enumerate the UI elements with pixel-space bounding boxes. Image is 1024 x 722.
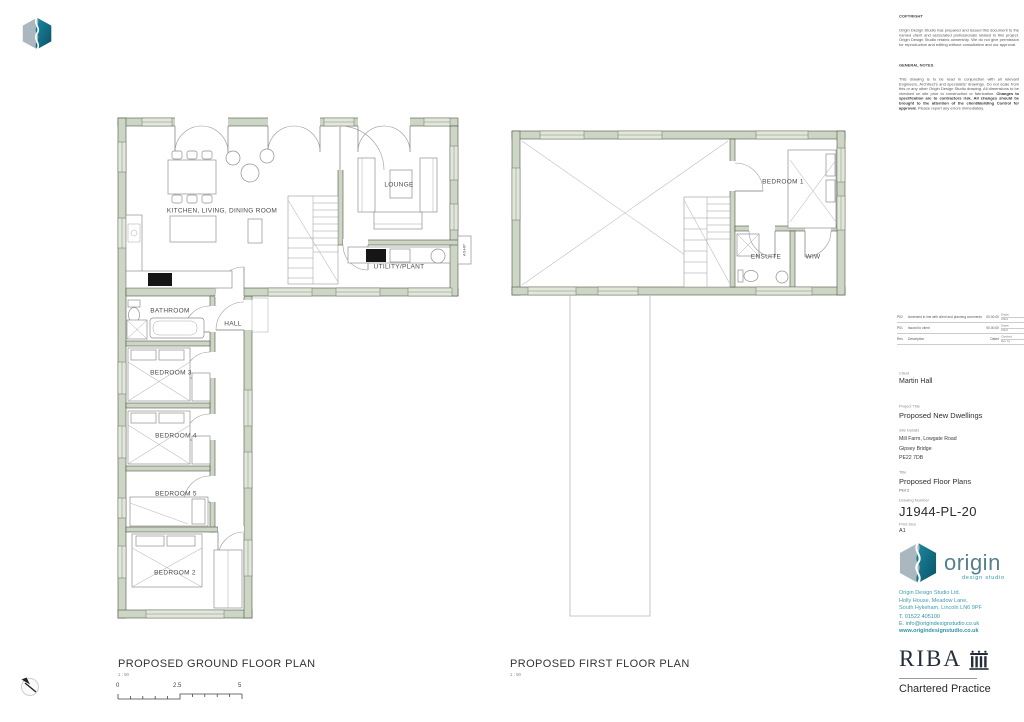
first-floor-plan-title: PROPOSED FIRST FLOOR PLAN bbox=[510, 658, 690, 670]
ground-floor-plan-scale: 1 : 50 bbox=[118, 672, 129, 677]
print-size-value: A1 bbox=[899, 528, 906, 534]
revision-row: P02 Amended in line with client and plan… bbox=[897, 312, 1024, 323]
ground-floor-plan-title: PROPOSED GROUND FLOOR PLAN bbox=[118, 658, 315, 670]
origin-tagline: design studio bbox=[962, 575, 1005, 581]
scale-bar-zero: 0 bbox=[116, 683, 119, 689]
room-label-ensuite: ENSUITE bbox=[751, 254, 781, 261]
first-floor-plan-scale: 1 : 50 bbox=[510, 672, 521, 677]
address-line-2: South Hykeham, Lincoln LN6 9PF bbox=[899, 605, 982, 613]
room-label-bedroom4: BEDROOM 4 bbox=[155, 433, 197, 440]
label-ashp: ASHP bbox=[462, 244, 467, 256]
general-notes-title: GENERAL NOTES bbox=[899, 63, 960, 68]
room-label-wiw: WIW bbox=[806, 254, 821, 261]
email-address: E. info@origindesignstudio.co.uk bbox=[899, 621, 979, 628]
room-label-lounge: LOUNGE bbox=[384, 182, 413, 189]
drawing-sheet: KITCHEN, LIVING, DINING ROOM LOUNGE UTIL… bbox=[0, 0, 1024, 722]
room-label-kitchen: KITCHEN, LIVING, DINING ROOM bbox=[167, 208, 277, 215]
scale-bar-end: 5 bbox=[238, 683, 241, 689]
revision-header-row: Rev. Description Dated CheckedRev. by bbox=[897, 334, 1024, 345]
print-size-label: Print Size bbox=[899, 522, 916, 527]
room-label-bedroom1: BEDROOM 1 bbox=[762, 179, 804, 186]
site-details-label: Site Details bbox=[899, 428, 919, 433]
room-label-bathroom: BATHROOM bbox=[150, 308, 189, 315]
general-notes-body: This drawing is to be read in conjunctio… bbox=[899, 77, 1019, 111]
room-label-bedroom3: BEDROOM 3 bbox=[150, 370, 192, 377]
address-line-1: Holly House, Meadow Lane, bbox=[899, 598, 982, 606]
drawing-title-label: Title bbox=[899, 470, 906, 475]
room-label-utility: UTILITY/PLANT bbox=[374, 264, 425, 271]
drawing-number-value: J1944-PL-20 bbox=[899, 504, 977, 519]
website-url: www.origindesignstudio.co.uk bbox=[899, 628, 979, 635]
site-line-1: Mill Farm, Lowgate Road bbox=[899, 434, 957, 444]
copyright-title: COPYRIGHT bbox=[899, 14, 960, 19]
client-value: Martin Hall bbox=[899, 378, 932, 385]
room-label-bedroom5: BEDROOM 5 bbox=[155, 491, 197, 498]
project-title-value: Proposed New Dwellings bbox=[899, 411, 982, 420]
general-notes: GENERAL NOTES This drawing is to be read… bbox=[899, 63, 1021, 144]
riba-chartered-practice: Chartered Practice bbox=[899, 683, 991, 695]
project-title-label: Project Title bbox=[899, 404, 920, 409]
site-line-3: PE22 7DB bbox=[899, 453, 923, 463]
copyright-body: Origin Design Studio has prepared and is… bbox=[899, 28, 1019, 47]
ground-floor-plan bbox=[118, 117, 471, 618]
drawing-number-label: Drawing Number bbox=[899, 498, 929, 503]
first-floor-plan bbox=[512, 131, 845, 616]
scale-bar-mid: 2.5 bbox=[173, 683, 181, 689]
client-label: Client bbox=[899, 371, 909, 376]
plot-label: Plot 2 bbox=[899, 488, 909, 493]
riba-divider bbox=[899, 678, 977, 679]
north-arrow-icon bbox=[22, 678, 39, 696]
room-label-bedroom2: BEDROOM 2 bbox=[154, 570, 196, 577]
copyright-note: COPYRIGHT Origin Design Studio has prepa… bbox=[899, 14, 1021, 66]
company-name: Origin Design Studio Ltd. bbox=[899, 590, 982, 598]
contact-details: T. 01522 405100 E. info@origindesignstud… bbox=[899, 614, 979, 636]
revision-table: P02 Amended in line with client and plan… bbox=[897, 312, 1024, 378]
drawing-title-value: Proposed Floor Plans bbox=[899, 477, 971, 486]
revision-row: P01 Issued to client 00.00.00 DrawnChk'd bbox=[897, 323, 1024, 334]
company-address: Origin Design Studio Ltd. Holly House, M… bbox=[899, 590, 982, 613]
riba-columns-icon bbox=[967, 650, 991, 672]
origin-cube-logo-icon bbox=[899, 542, 937, 584]
floor-plans-drawing bbox=[0, 0, 1024, 722]
room-label-hall: HALL bbox=[224, 321, 241, 328]
riba-wordmark: RIBA bbox=[899, 646, 962, 672]
scale-bar bbox=[118, 694, 242, 699]
phone-number: T. 01522 405100 bbox=[899, 614, 979, 621]
origin-wordmark: origin bbox=[944, 550, 1001, 576]
